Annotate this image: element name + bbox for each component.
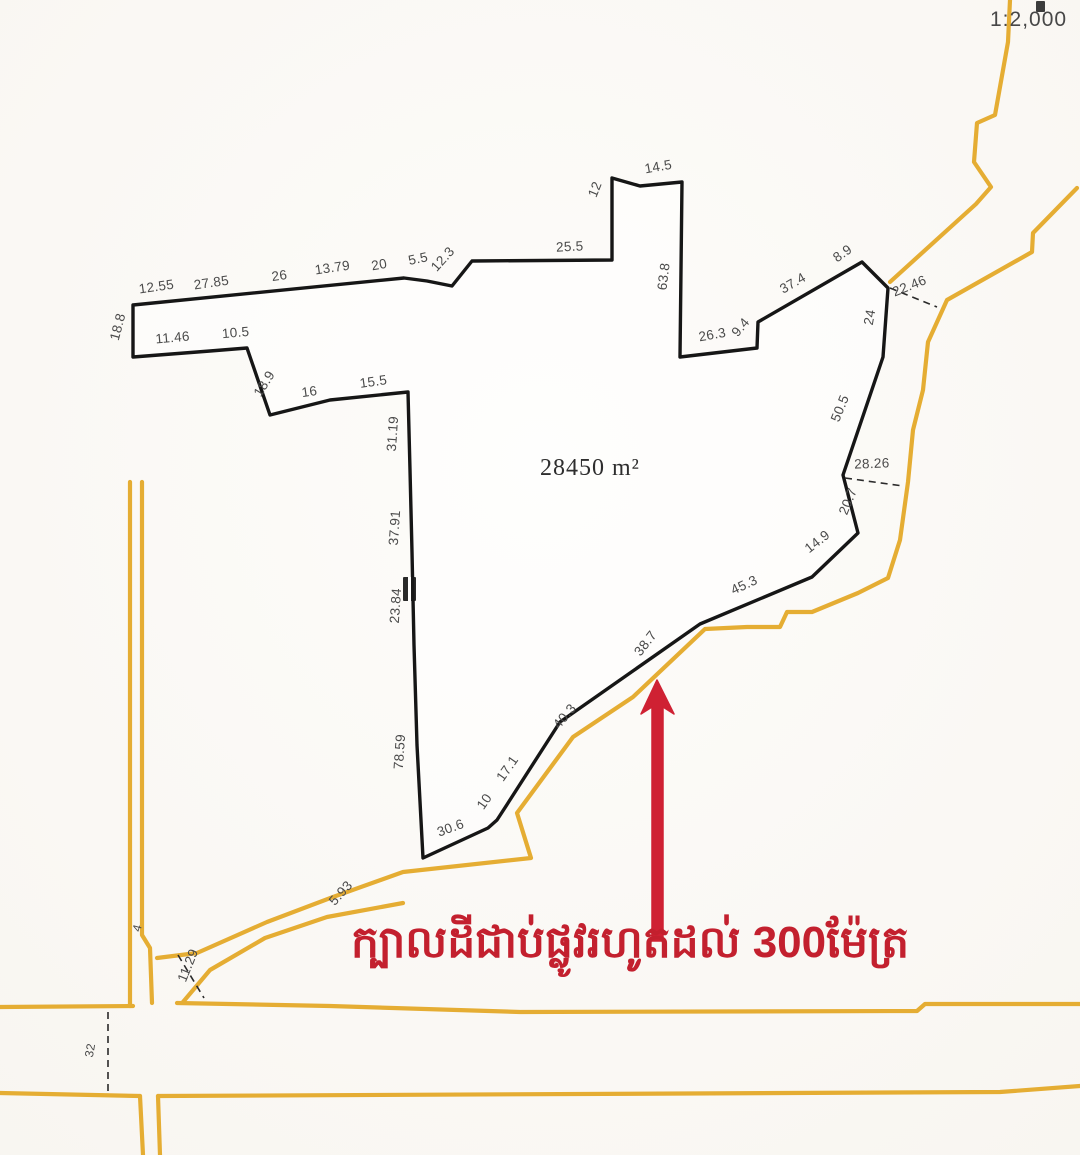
measurement-label: 27.85	[193, 273, 230, 293]
road-frontage-annotation: ក្បាលដីជាប់ផ្លូវរហូតដល់ 300ម៉ែត្រ	[285, 913, 975, 972]
measurement-label: 12	[585, 179, 605, 199]
red-arrow	[641, 680, 674, 941]
road-edge-line	[0, 1093, 140, 1096]
measurement-label: 37.91	[386, 510, 403, 546]
road-edge-line	[0, 1006, 133, 1007]
measurement-label: 12.55	[138, 277, 175, 297]
measurement-label: 28.26	[854, 455, 890, 471]
measurement-label: 9.4	[728, 315, 752, 340]
parcel-area-label: 28450 m²	[540, 455, 780, 482]
map-scale-label: 1:2,000	[990, 8, 1080, 32]
road-edge-line	[158, 1096, 160, 1155]
measurement-label: 24	[861, 308, 879, 326]
measurement-label: 26	[271, 267, 289, 284]
road-edge-line	[140, 1096, 143, 1155]
measurement-label: 18.8	[107, 312, 129, 342]
measurement-label: 5.5	[407, 249, 429, 268]
measurement-label: 26.3	[697, 325, 727, 345]
survey-map-canvas: 12.5527.852613.79205.512.325.51214.563.8…	[0, 0, 1080, 1155]
measurement-label: 13.79	[314, 258, 351, 278]
measurement-label: 10.5	[221, 324, 250, 341]
cadastral-map-page: 12.5527.852613.79205.512.325.51214.563.8…	[0, 0, 1080, 1155]
measurement-label: 78.59	[391, 734, 408, 770]
measurement-label: 14.5	[643, 157, 673, 177]
measurement-label: 23.84	[387, 587, 404, 623]
measurement-label: 5.93	[326, 878, 356, 908]
road-edge-line	[177, 1003, 1080, 1012]
measurement-label: 32	[82, 1042, 98, 1058]
measurement-label: 31.19	[384, 416, 401, 452]
dashed-measure-line	[845, 478, 903, 486]
road-edge-line	[158, 1086, 1080, 1096]
measurement-label: 25.5	[556, 238, 584, 254]
measurement-label: 8.9	[830, 242, 855, 266]
measurement-label: 11.29	[174, 947, 201, 984]
measurement-label: 12.3	[428, 244, 458, 274]
measurement-label: 20	[370, 256, 388, 273]
measurement-label: 16	[301, 383, 319, 400]
road-edge-line	[142, 482, 152, 1003]
watermark-artifact	[403, 577, 416, 601]
road-edge-line	[890, 0, 1010, 282]
measurement-label: 37.4	[777, 270, 808, 297]
measurement-label: 11.46	[155, 329, 190, 347]
